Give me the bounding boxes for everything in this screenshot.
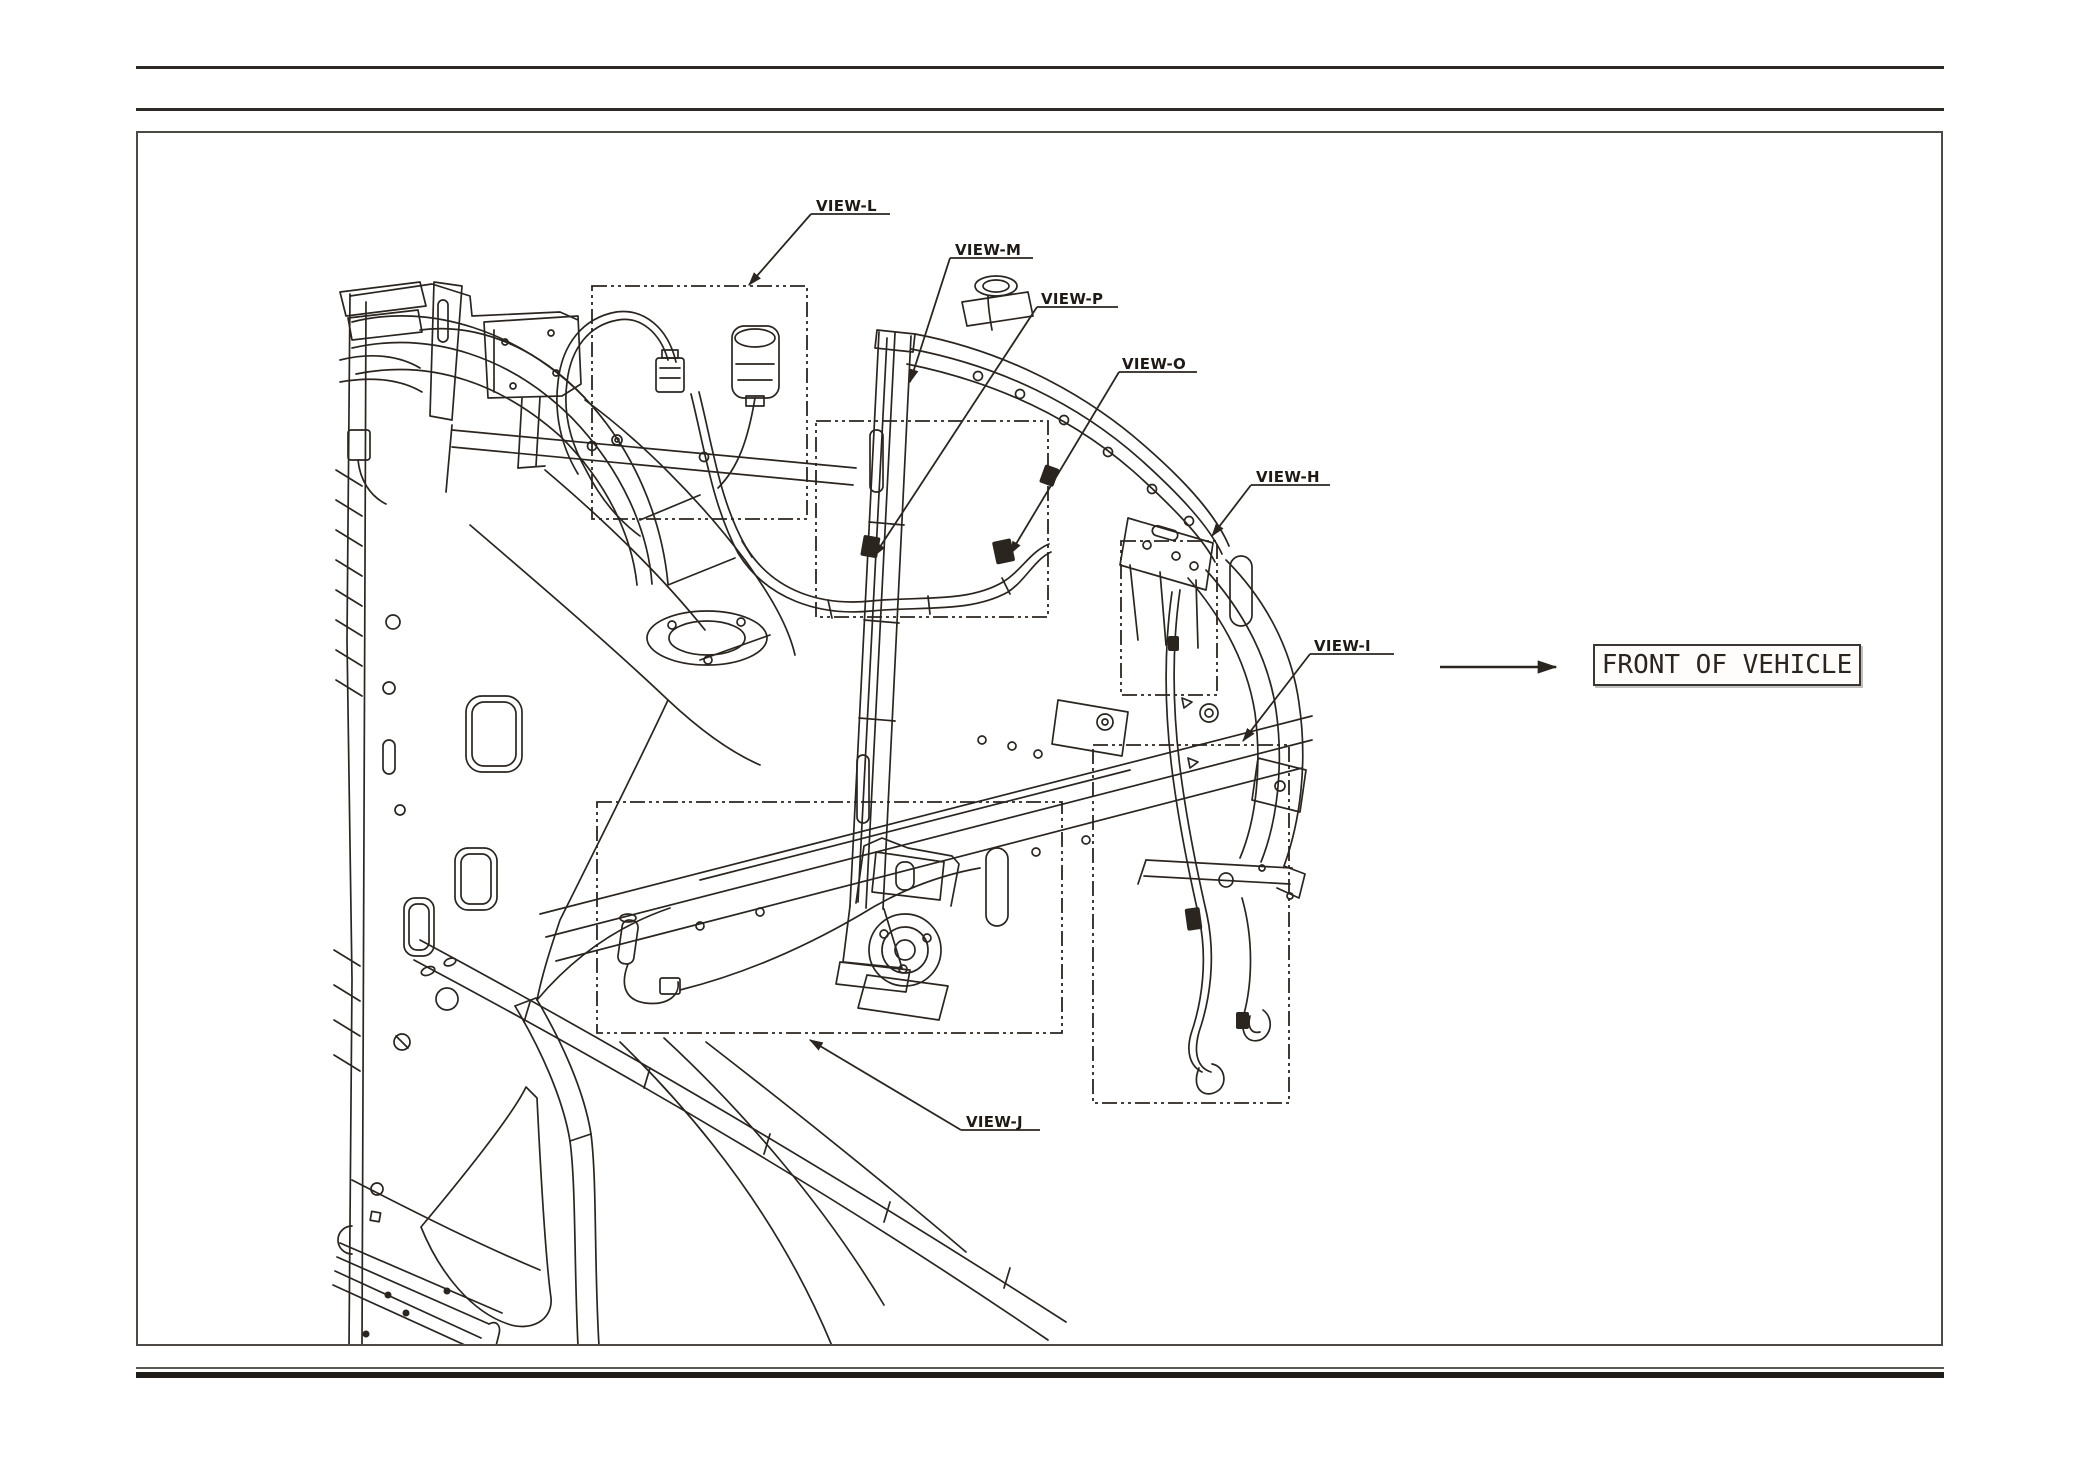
view-l-leader bbox=[749, 214, 811, 285]
view-region-boxes bbox=[592, 286, 1289, 1103]
view-j-leader bbox=[810, 1040, 961, 1130]
bottom-rule-thin bbox=[136, 1367, 1944, 1369]
callout-view-i: VIEW-I bbox=[1314, 637, 1371, 655]
callout-view-j: VIEW-J bbox=[966, 1113, 1023, 1131]
front-of-vehicle-box: FRONT OF VEHICLE bbox=[1593, 644, 1861, 686]
callout-view-l: VIEW-L bbox=[816, 197, 877, 215]
callout-view-m: VIEW-M bbox=[955, 241, 1021, 259]
view-i-leader bbox=[1243, 654, 1310, 741]
view-o-leader bbox=[1010, 372, 1119, 554]
callout-view-o: VIEW-O bbox=[1122, 355, 1186, 373]
bottom-rule-thick bbox=[136, 1372, 1944, 1378]
front-of-vehicle-label: FRONT OF VEHICLE bbox=[1602, 650, 1852, 680]
view-h-leader bbox=[1212, 485, 1251, 536]
vehicle-structure-illustration bbox=[0, 0, 2080, 1471]
callout-leaders bbox=[749, 214, 1394, 1130]
callout-view-p: VIEW-P bbox=[1041, 290, 1103, 308]
view-l-region-box bbox=[592, 286, 807, 519]
view-m-leader bbox=[910, 258, 950, 382]
view-p-leader bbox=[874, 307, 1037, 556]
body-structure-lines bbox=[333, 276, 1312, 1346]
callout-view-h: VIEW-H bbox=[1256, 468, 1320, 486]
page: VIEW-L VIEW-M VIEW-P VIEW-O VIEW-H VIEW-… bbox=[0, 0, 2080, 1471]
view-j-region-box bbox=[597, 802, 1062, 1033]
